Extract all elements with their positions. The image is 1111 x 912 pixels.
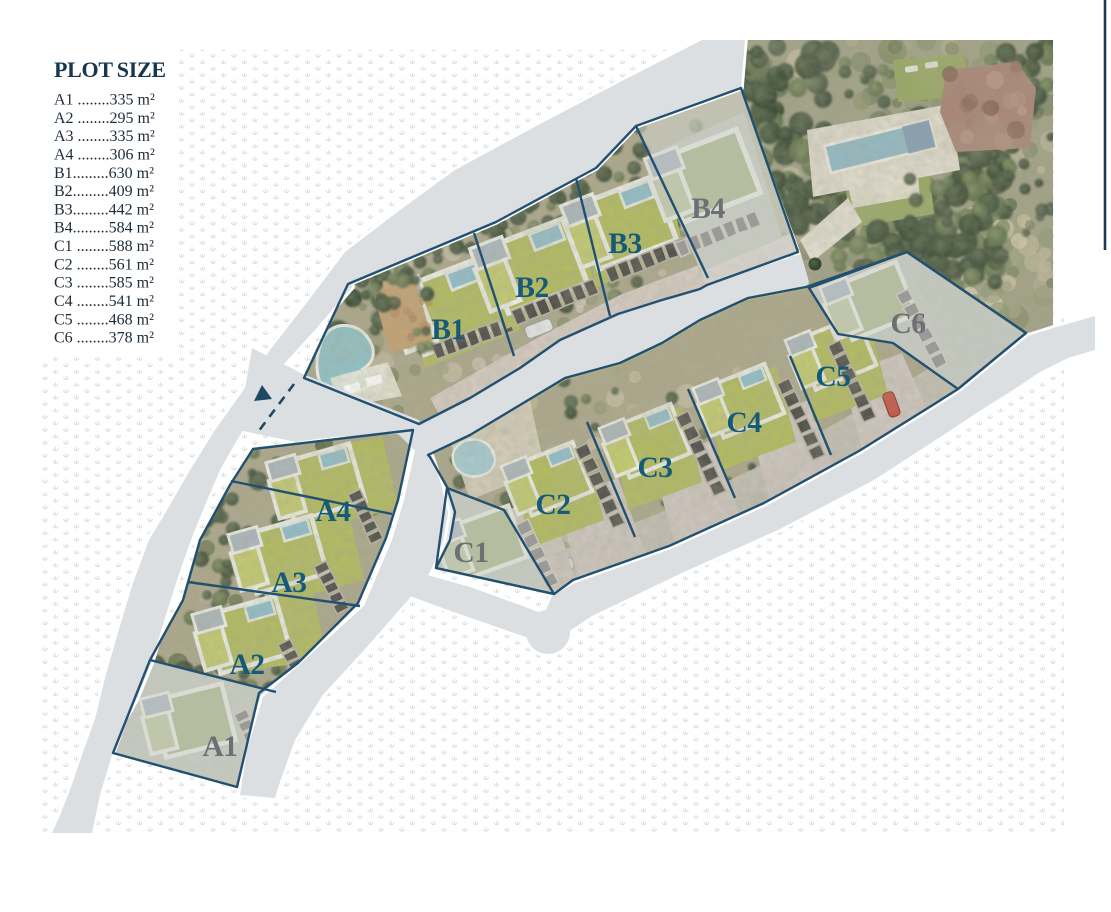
svg-text:B1.........630 m²: B1.........630 m²	[54, 165, 154, 182]
svg-text:C3: C3	[637, 452, 672, 484]
svg-text:C5: C5	[815, 361, 850, 393]
svg-text:B4: B4	[691, 193, 725, 225]
svg-text:A3 ........335 m²: A3 ........335 m²	[54, 128, 155, 145]
svg-text:B3: B3	[608, 228, 641, 260]
svg-text:C4: C4	[726, 407, 762, 439]
svg-text:B2: B2	[515, 272, 548, 304]
svg-text:C2 ........561 m²: C2 ........561 m²	[54, 256, 154, 273]
svg-text:A3: A3	[271, 567, 306, 599]
svg-text:C4 ........541 m²: C4 ........541 m²	[54, 293, 154, 310]
svg-text:A1 ........335 m²: A1 ........335 m²	[54, 92, 155, 109]
svg-text:A2 ........295 m²: A2 ........295 m²	[54, 110, 155, 127]
svg-text:C1: C1	[453, 537, 488, 569]
svg-text:C3 ........585 m²: C3 ........585 m²	[54, 275, 154, 292]
svg-text:A4 ........306 m²: A4 ........306 m²	[54, 147, 155, 164]
svg-text:C1 ........588 m²: C1 ........588 m²	[54, 238, 154, 255]
svg-text:A4: A4	[315, 496, 351, 528]
svg-text:C6 ........378 m²: C6 ........378 m²	[54, 330, 154, 347]
svg-text:PLOT SIZE: PLOT SIZE	[54, 57, 166, 82]
svg-text:C5 ........468 m²: C5 ........468 m²	[54, 311, 154, 328]
svg-text:A1: A1	[202, 731, 237, 763]
svg-text:C6: C6	[890, 308, 925, 340]
svg-text:C2: C2	[535, 489, 570, 521]
svg-text:B3.........442 m²: B3.........442 m²	[54, 201, 154, 218]
svg-text:A2: A2	[229, 649, 264, 681]
svg-text:B2.........409 m²: B2.........409 m²	[54, 183, 154, 200]
svg-text:B4.........584 m²: B4.........584 m²	[54, 220, 154, 237]
svg-text:B1: B1	[431, 314, 464, 346]
